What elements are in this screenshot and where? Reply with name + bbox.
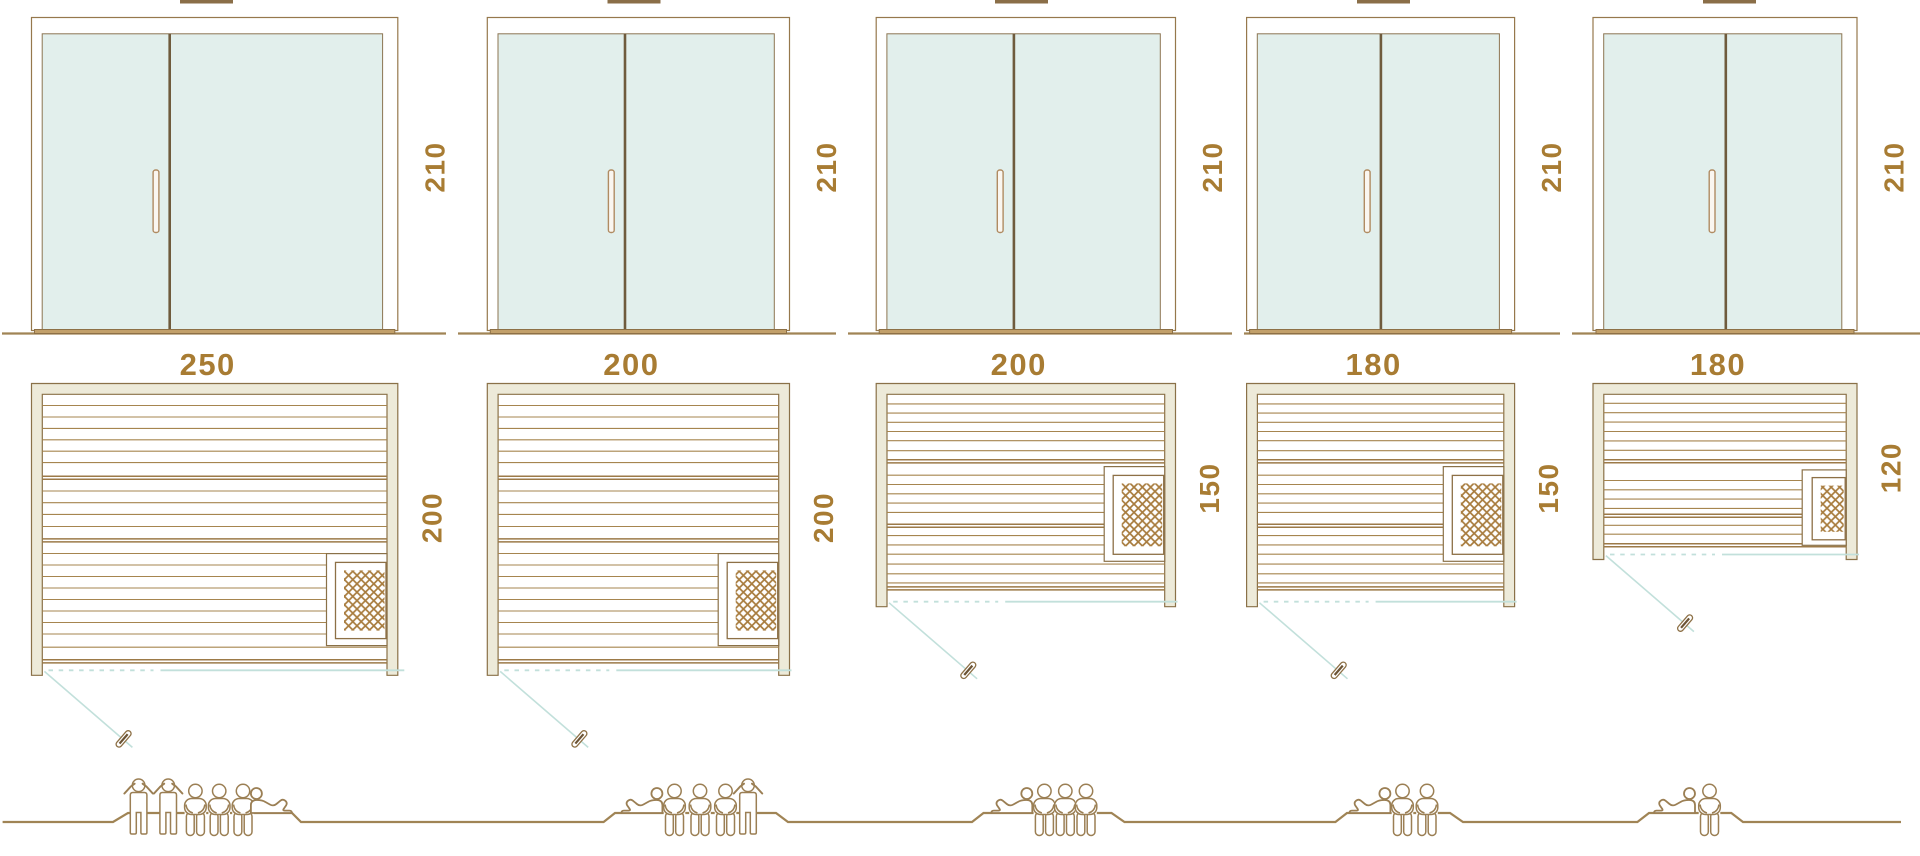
svg-text:150: 150 <box>1194 462 1225 513</box>
svg-text:150: 150 <box>1533 462 1564 513</box>
svg-text:180: 180 <box>1345 347 1401 382</box>
svg-text:210: 210 <box>811 141 842 192</box>
svg-text:250: 250 <box>180 347 236 382</box>
svg-text:200: 200 <box>416 492 447 543</box>
svg-text:200: 200 <box>991 347 1047 382</box>
svg-text:210: 210 <box>1879 141 1910 192</box>
svg-text:210: 210 <box>1536 141 1567 192</box>
svg-text:200: 200 <box>603 347 659 382</box>
svg-text:200: 200 <box>808 492 839 543</box>
svg-text:210: 210 <box>419 141 450 192</box>
svg-text:120: 120 <box>1876 442 1907 493</box>
svg-text:180: 180 <box>1690 347 1746 382</box>
svg-text:210: 210 <box>1197 141 1228 192</box>
